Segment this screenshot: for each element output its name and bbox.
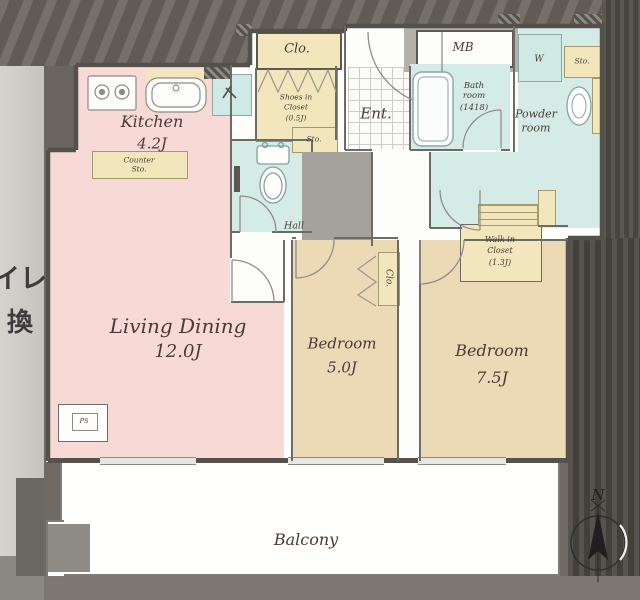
- bedroom-small-size: 5.0J: [327, 361, 357, 376]
- powder-label-2: room: [522, 123, 551, 134]
- kitchen-size: 4.2J: [137, 137, 167, 152]
- counter-storage-label-2: Sto.: [132, 165, 147, 173]
- powder-storage-label: Sto.: [575, 57, 590, 65]
- hall-storage-label: Sto.: [307, 135, 322, 143]
- bath-label-1: Bath: [464, 82, 484, 91]
- walk-in-closet-label-1: Walk in: [485, 236, 515, 244]
- compass-north-label: N: [590, 486, 605, 504]
- floorplan-screenshot: イレ） 換 Balcony: [0, 0, 640, 600]
- kitchen-label: Kitchen: [121, 114, 184, 130]
- shoes-closet-size: (0.5J): [286, 114, 307, 122]
- bedroom-large-label: Bedroom: [455, 343, 529, 359]
- toilet-icon: [257, 143, 289, 204]
- bedroom-closet-folding-door: [358, 256, 376, 306]
- refrigerator-icon: [223, 86, 236, 98]
- shoes-closet-label-2: Closet: [284, 103, 308, 111]
- powder-door-arc: [440, 190, 480, 230]
- entrance-label: Ent.: [360, 107, 391, 122]
- counter-storage-label-1: Counter: [124, 156, 155, 164]
- pipe-space-label: PS: [80, 418, 89, 425]
- bedroom-large-size: 7.5J: [476, 370, 508, 386]
- bedroom-small-label: Bedroom: [308, 337, 377, 352]
- living-dining-size: 12.0J: [154, 343, 201, 361]
- living-door-arc: [232, 260, 274, 302]
- bath-door-arc: [463, 110, 501, 148]
- bath-size: (1418): [460, 104, 488, 113]
- bedroom-large-door-arc: [420, 240, 464, 284]
- bathtub-icon: [413, 72, 453, 146]
- meter-box-label: MB: [452, 41, 473, 53]
- stove-icon: [88, 76, 136, 110]
- vanity-basin-icon: [567, 87, 591, 125]
- walk-in-closet-label-2: Closet: [487, 247, 513, 255]
- shoes-closet-folding-door: [258, 70, 336, 92]
- bedroom-closet-label: Clo.: [384, 269, 393, 287]
- living-dining-label: Living Dining: [110, 316, 247, 336]
- interior-walls: [231, 26, 568, 461]
- compass-icon: N: [571, 486, 626, 582]
- entry-closet-label: Clo.: [284, 43, 310, 56]
- kitchen-sink-icon: [146, 78, 206, 112]
- bath-label-2: room: [463, 92, 485, 101]
- powder-label-1: Powder: [515, 109, 557, 120]
- walk-in-closet-size: (1.3J): [489, 259, 511, 267]
- shoes-closet-label-1: Shoes in: [280, 93, 312, 101]
- floorplan-linework: N: [0, 0, 640, 600]
- bedroom-small-door-arc: [296, 240, 334, 278]
- washer-label: W: [534, 56, 543, 65]
- hall-label: Hall: [284, 221, 304, 231]
